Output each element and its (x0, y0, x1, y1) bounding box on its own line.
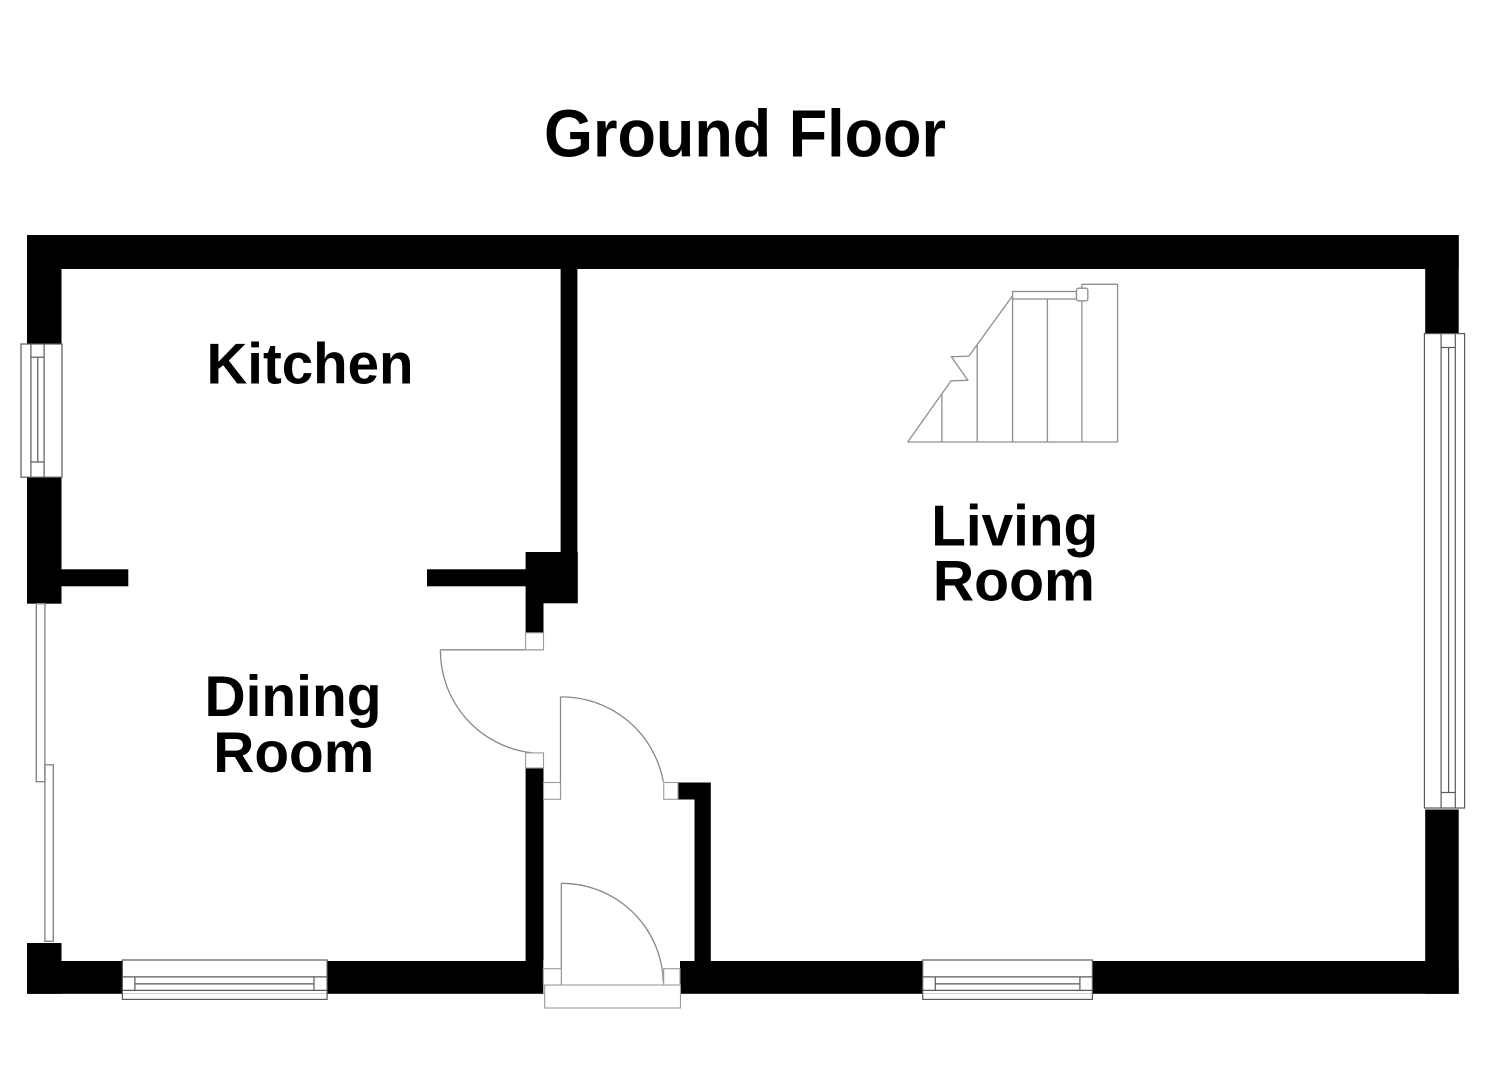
svg-text:Ground Floor: Ground Floor (544, 97, 946, 172)
svg-text:Room: Room (933, 550, 1095, 614)
svg-text:Dining: Dining (205, 665, 382, 729)
svg-text:Room: Room (213, 721, 374, 785)
svg-text:Kitchen: Kitchen (207, 332, 414, 396)
